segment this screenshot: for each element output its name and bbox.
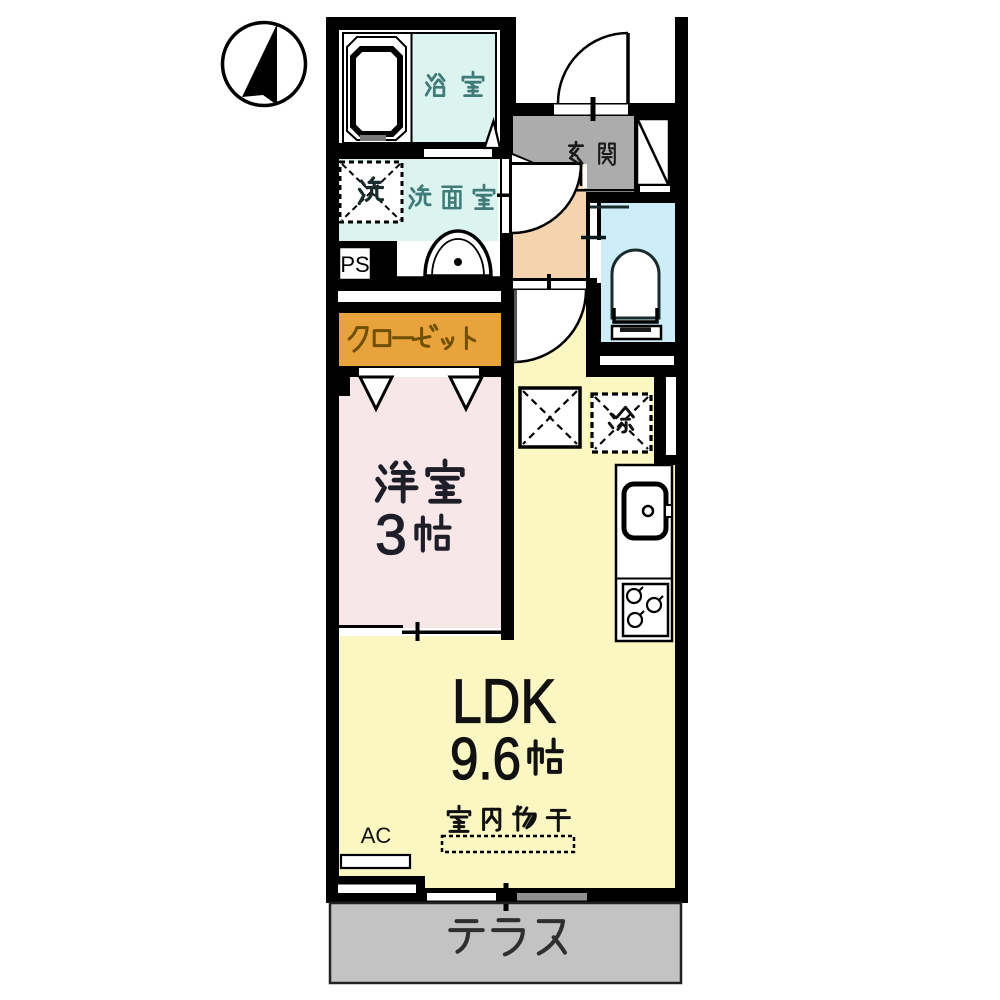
svg-text:AC: AC xyxy=(361,823,392,848)
svg-text:PS: PS xyxy=(340,252,369,277)
svg-text:9.6: 9.6 xyxy=(450,726,521,792)
svg-text:3: 3 xyxy=(375,503,407,567)
